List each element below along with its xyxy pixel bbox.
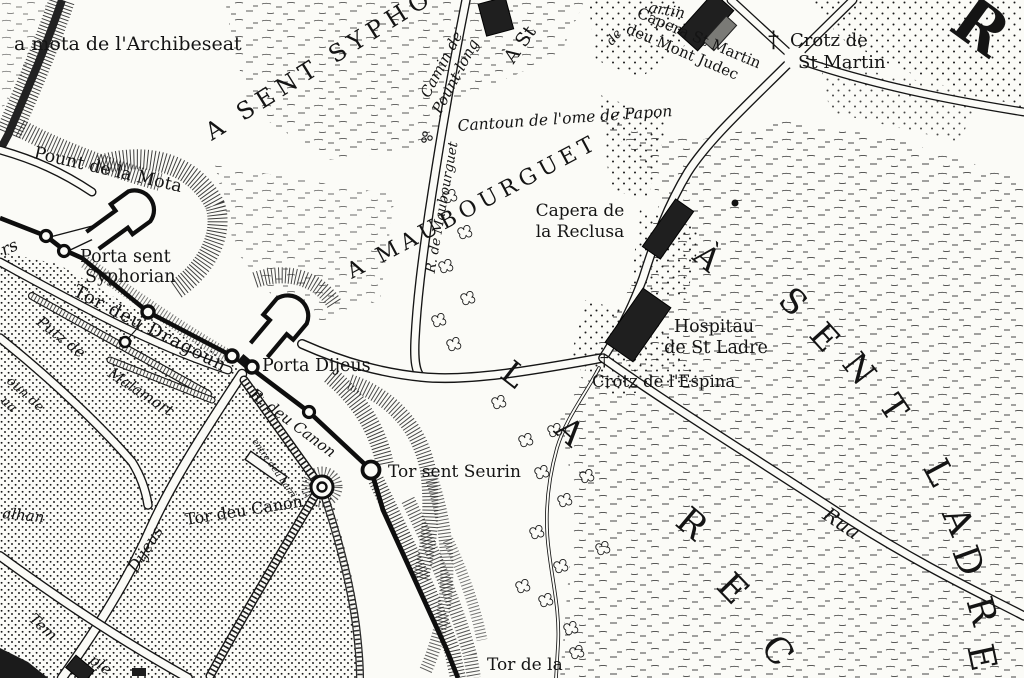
historic-town-map: a mota de l'Archibeseat A SENT SYPHORIAN… (0, 0, 1024, 678)
label-tor-sent-seurin: Tor sent Seurin (388, 462, 521, 482)
label-capera-reclusa-2: la Reclusa (536, 222, 625, 242)
map-canvas: a mota de l'Archibeseat A SENT SYPHORIAN… (0, 0, 1024, 678)
tower-sent-seurin (363, 462, 380, 479)
label-crotz-st-martin-1: Crotz de (790, 30, 868, 51)
label-hospitau-1: Hospitau (674, 317, 754, 337)
label-crotz-st-martin-2: St Martin (798, 52, 886, 73)
label-porta-dijeus: Porta Dijeus (262, 356, 371, 376)
label-porta-syphorian-2: Syphorian (85, 267, 176, 287)
label-crotz-espina: Crotz de l'Espina (592, 372, 735, 391)
tower (246, 361, 258, 373)
label-capera-reclusa-1: Capera de (536, 201, 625, 221)
label-tor-de-la: Tor de la (487, 655, 563, 675)
cross-st-martin: † (768, 28, 779, 53)
small-building (132, 668, 146, 676)
tower (59, 246, 70, 257)
tower-canon-round (311, 476, 333, 498)
label-porta-syphorian-1: Porta sent (80, 247, 171, 267)
cross-espina: † (600, 351, 609, 371)
well-malamort (120, 337, 130, 347)
label-archibescat: a mota de l'Archibeseat (14, 33, 242, 55)
black-dot-marker (732, 200, 739, 207)
tower (304, 407, 315, 418)
tower (41, 231, 52, 242)
label-hospitau-2: de St Ladre (664, 338, 768, 358)
